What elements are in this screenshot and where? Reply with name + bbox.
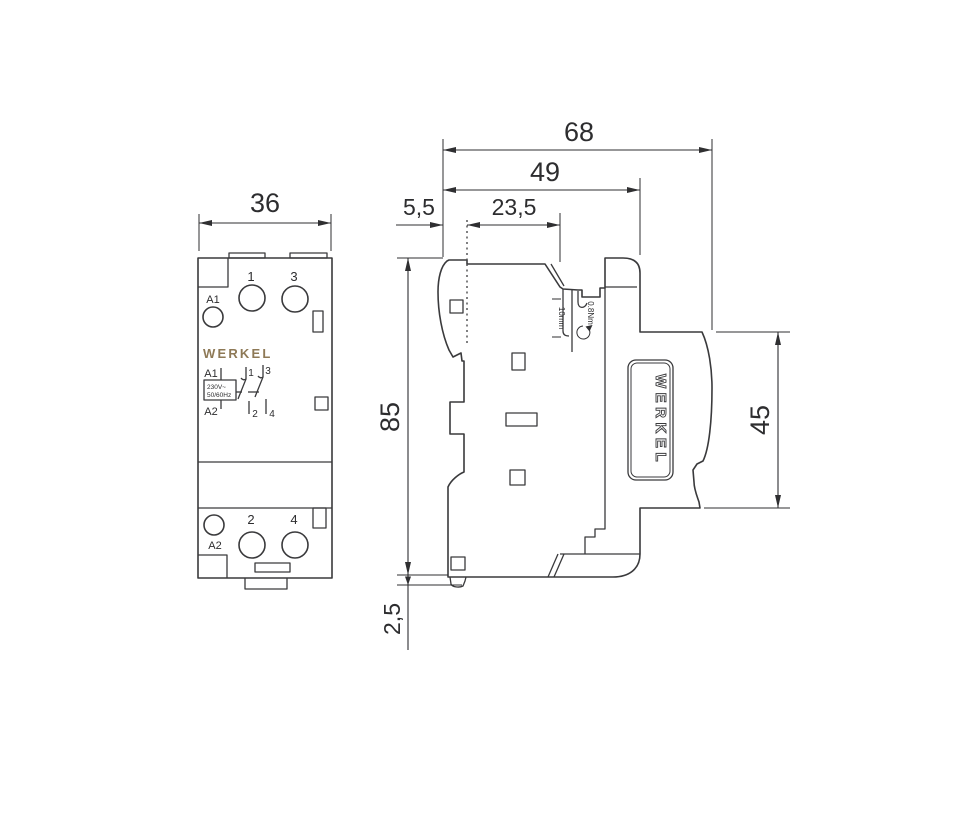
front-bottom-tab: [245, 578, 287, 589]
terminal-label-2: 2: [247, 512, 254, 527]
terminal-hole-1: [239, 285, 265, 311]
diagram-label-a2: A2: [204, 406, 217, 418]
arrow-right: [627, 187, 640, 193]
side-bottom-chamfer-line: [548, 554, 558, 577]
arrow-right: [318, 220, 331, 226]
side-dim-rail-offset: 5,5: [396, 194, 443, 228]
front-top-left-notch: [198, 258, 228, 287]
terminal-label-a1: A1: [206, 294, 219, 306]
terminal-hole-2: [239, 532, 265, 558]
contact-top-lead: [241, 367, 246, 380]
arrow-bottom: [405, 562, 411, 575]
side-cutout-square-mid: [512, 353, 525, 370]
contactor-dimensional-drawing: 36 A1 1 3 WERKEL A1 230V~: [0, 0, 968, 814]
side-dim-rail-protrusion: 2,5: [379, 575, 462, 650]
contact-top-lead: [258, 365, 263, 378]
front-rating-label: A1 230V~ 50/60Hz A2 1 2 3 4: [204, 365, 275, 420]
arrow-top: [775, 332, 781, 345]
side-dim-front-height: 45: [704, 332, 790, 508]
terminal-hole-a1: [203, 307, 223, 327]
side-view: WERKEL 10mm 0.8Nm 68: [375, 117, 790, 650]
terminal-hole-a2: [204, 515, 224, 535]
side-cutout-square-top: [450, 300, 463, 313]
front-top-terminals: A1 1 3: [203, 269, 308, 327]
terminal-label-4: 4: [290, 512, 297, 527]
arrow-left: [467, 222, 480, 228]
front-view: 36 A1 1 3 WERKEL A1 230V~: [198, 188, 332, 589]
arrow-right: [547, 222, 560, 228]
dim-value-49: 49: [530, 157, 560, 187]
arrow-left: [443, 147, 456, 153]
contact-label-2: 2: [252, 409, 258, 420]
contact-blade: [238, 379, 246, 399]
contact-label-4: 4: [269, 409, 275, 420]
front-right-tab-lower: [313, 508, 326, 528]
terminal-hole-3: [282, 286, 308, 312]
side-brand-logo: WERKEL: [652, 374, 669, 466]
front-bottom-terminals: A2 2 4: [204, 512, 308, 558]
side-cutout-slot: [506, 413, 537, 426]
dim-value-45: 45: [745, 405, 775, 435]
front-bottom-left-notch: [198, 555, 227, 578]
front-dim-width: 36: [199, 188, 331, 251]
terminal-hole-4: [282, 532, 308, 558]
arrow-right: [699, 147, 712, 153]
drawing-canvas: 36 A1 1 3 WERKEL A1 230V~: [0, 0, 968, 814]
side-dim-height: 85: [375, 258, 448, 575]
terminal-label-1: 1: [247, 269, 254, 284]
dim-value-2-5: 2,5: [379, 603, 405, 635]
front-brand-logo: WERKEL: [203, 346, 273, 361]
arrow-down: [405, 577, 411, 586]
side-cutout-square-bottom: [451, 557, 465, 570]
rating-voltage: 230V~: [207, 384, 226, 391]
torque-arrow-head: [586, 325, 593, 332]
arrow-top: [405, 258, 411, 271]
side-rail-foot: [450, 577, 466, 587]
front-right-tab-upper: [313, 311, 323, 332]
dim-value-85: 85: [375, 402, 405, 432]
dim-value-5-5: 5,5: [403, 194, 435, 220]
contact-label-1: 1: [248, 368, 254, 379]
rating-frequency: 50/60Hz: [207, 392, 231, 399]
front-body-outline: [198, 258, 332, 578]
side-logo-plate: WERKEL: [628, 360, 673, 480]
side-bottom-chamfer-line: [554, 554, 564, 577]
torque-text: 0.8Nm: [586, 301, 595, 325]
strip-length-annotation: 10mm: [552, 299, 566, 337]
contact-symbol-1-2: 1 2: [238, 367, 258, 420]
diagram-label-a1: A1: [204, 368, 217, 380]
contact-label-3: 3: [265, 366, 271, 377]
side-dim-terminal-offset: 23,5: [467, 194, 560, 262]
dim-value-68: 68: [564, 117, 594, 147]
front-bottom-slot: [255, 563, 290, 572]
side-dim-body-depth: 49: [443, 157, 640, 255]
dim-value-23-5: 23,5: [492, 194, 537, 220]
terminal-label-3: 3: [290, 269, 297, 284]
side-body-outline: [438, 258, 712, 577]
arrow-bottom: [775, 495, 781, 508]
arrow-left: [199, 220, 212, 226]
side-cutout-square-lower: [510, 470, 525, 485]
arrow-left: [443, 187, 456, 193]
contact-blade: [255, 377, 263, 397]
strip-length-text: 10mm: [557, 307, 566, 330]
dim-width-value: 36: [250, 188, 280, 218]
arrow-right-outside: [430, 222, 443, 228]
terminal-label-a2: A2: [208, 540, 221, 552]
front-right-square: [315, 397, 328, 410]
